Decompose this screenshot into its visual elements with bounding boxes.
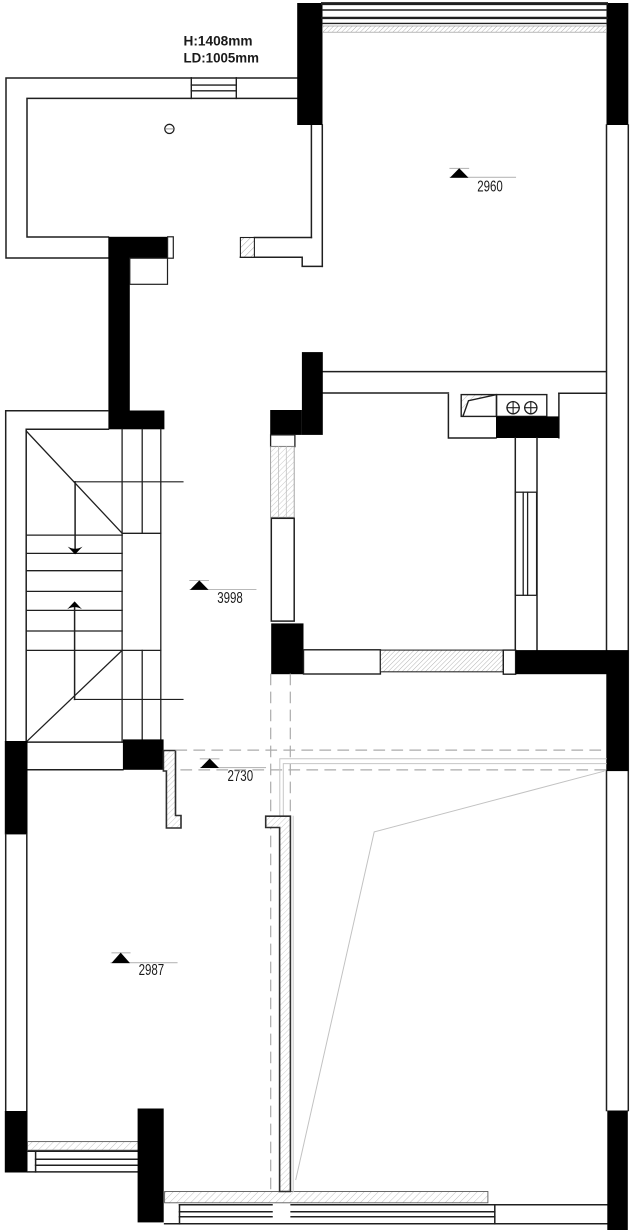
svg-text:3998: 3998 [217, 590, 243, 607]
svg-text:2987: 2987 [139, 962, 165, 979]
svg-text:2960: 2960 [477, 178, 503, 195]
svg-text:LD:1005mm: LD:1005mm [184, 51, 260, 67]
svg-text:H:1408mm: H:1408mm [184, 34, 253, 50]
